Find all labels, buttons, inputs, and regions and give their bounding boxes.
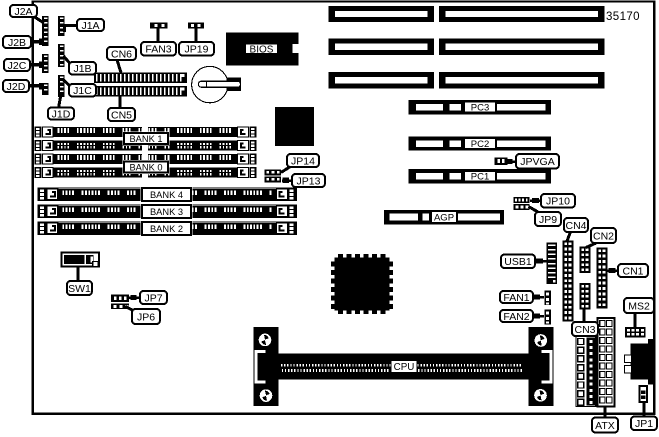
svg-text:PC2: PC2 bbox=[471, 139, 489, 150]
svg-text:USB1: USB1 bbox=[504, 256, 532, 268]
svg-text:BANK 4: BANK 4 bbox=[150, 190, 183, 200]
svg-text:J2C: J2C bbox=[8, 60, 27, 72]
svg-text:JP14: JP14 bbox=[291, 155, 315, 167]
svg-text:FAN1: FAN1 bbox=[503, 292, 529, 304]
svg-text:J1C: J1C bbox=[73, 85, 92, 97]
svg-text:JP7: JP7 bbox=[144, 292, 162, 304]
svg-text:J1A: J1A bbox=[81, 20, 99, 32]
svg-text:BANK 1: BANK 1 bbox=[129, 134, 162, 144]
svg-text:JP6: JP6 bbox=[137, 311, 155, 323]
svg-text:JP9: JP9 bbox=[539, 214, 557, 226]
svg-text:JPVGA: JPVGA bbox=[520, 156, 554, 168]
svg-text:JP10: JP10 bbox=[546, 196, 570, 208]
svg-text:SW1: SW1 bbox=[68, 283, 91, 295]
svg-text:J2D: J2D bbox=[7, 81, 26, 93]
svg-text:AGP: AGP bbox=[434, 213, 454, 224]
svg-text:CN4: CN4 bbox=[565, 220, 586, 232]
svg-text:CN5: CN5 bbox=[111, 109, 132, 121]
svg-text:CN2: CN2 bbox=[593, 230, 614, 242]
svg-text:JP19: JP19 bbox=[185, 44, 209, 56]
svg-text:JP13: JP13 bbox=[297, 175, 321, 187]
svg-text:MS2: MS2 bbox=[628, 300, 650, 312]
svg-text:J1B: J1B bbox=[73, 63, 91, 75]
svg-text:BANK 0: BANK 0 bbox=[129, 162, 162, 172]
svg-text:CN1: CN1 bbox=[622, 265, 643, 277]
svg-text:J2A: J2A bbox=[14, 6, 32, 18]
svg-text:PC1: PC1 bbox=[471, 172, 489, 183]
svg-text:BIOS: BIOS bbox=[250, 44, 274, 55]
svg-text:BANK 3: BANK 3 bbox=[150, 207, 183, 217]
svg-text:J2B: J2B bbox=[8, 37, 26, 49]
svg-text:BANK 2: BANK 2 bbox=[150, 224, 183, 234]
svg-text:PC3: PC3 bbox=[471, 103, 489, 114]
svg-text:FAN3: FAN3 bbox=[145, 44, 171, 56]
svg-text:CPU: CPU bbox=[394, 362, 415, 373]
svg-text:JP1: JP1 bbox=[635, 418, 653, 430]
svg-text:CN6: CN6 bbox=[111, 48, 132, 60]
svg-text:J1D: J1D bbox=[52, 108, 71, 120]
svg-text:FAN2: FAN2 bbox=[503, 311, 529, 323]
svg-text:35170: 35170 bbox=[606, 11, 640, 23]
svg-text:CN3: CN3 bbox=[574, 324, 595, 336]
svg-text:ATX: ATX bbox=[595, 420, 615, 432]
